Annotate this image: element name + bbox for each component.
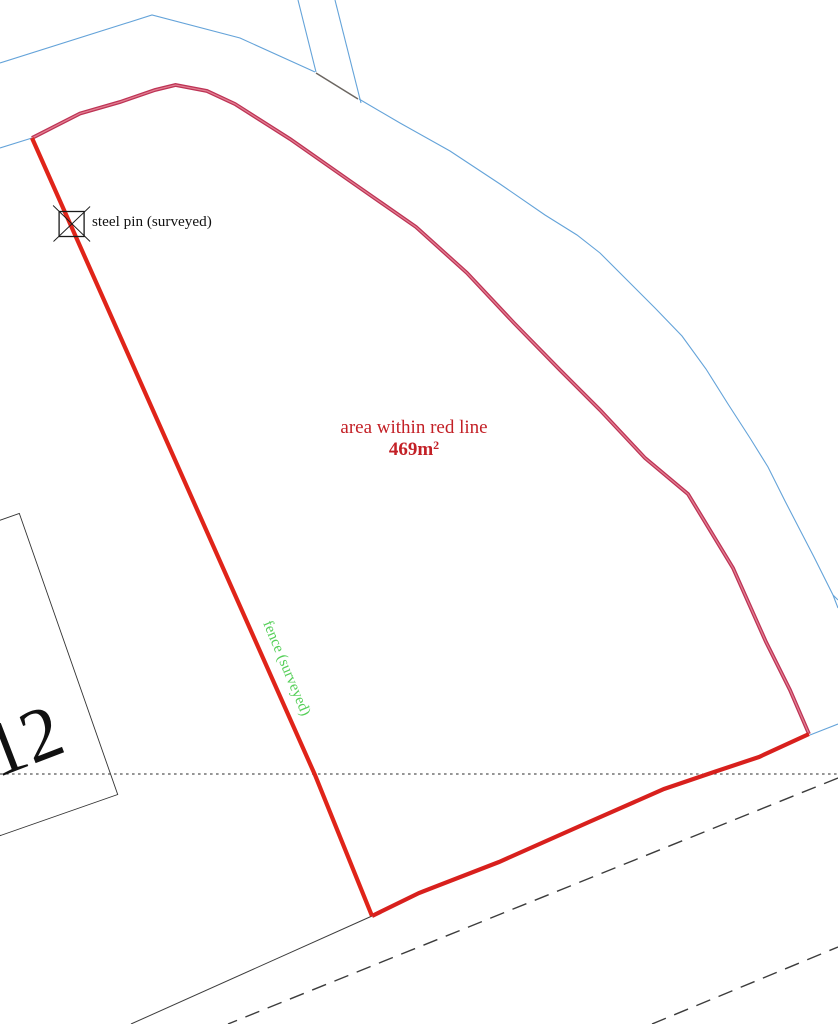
svg-text:area within red line: area within red line xyxy=(340,417,487,438)
svg-text:469m2: 469m2 xyxy=(389,438,439,460)
svg-text:steel pin (surveyed): steel pin (surveyed) xyxy=(92,213,212,230)
